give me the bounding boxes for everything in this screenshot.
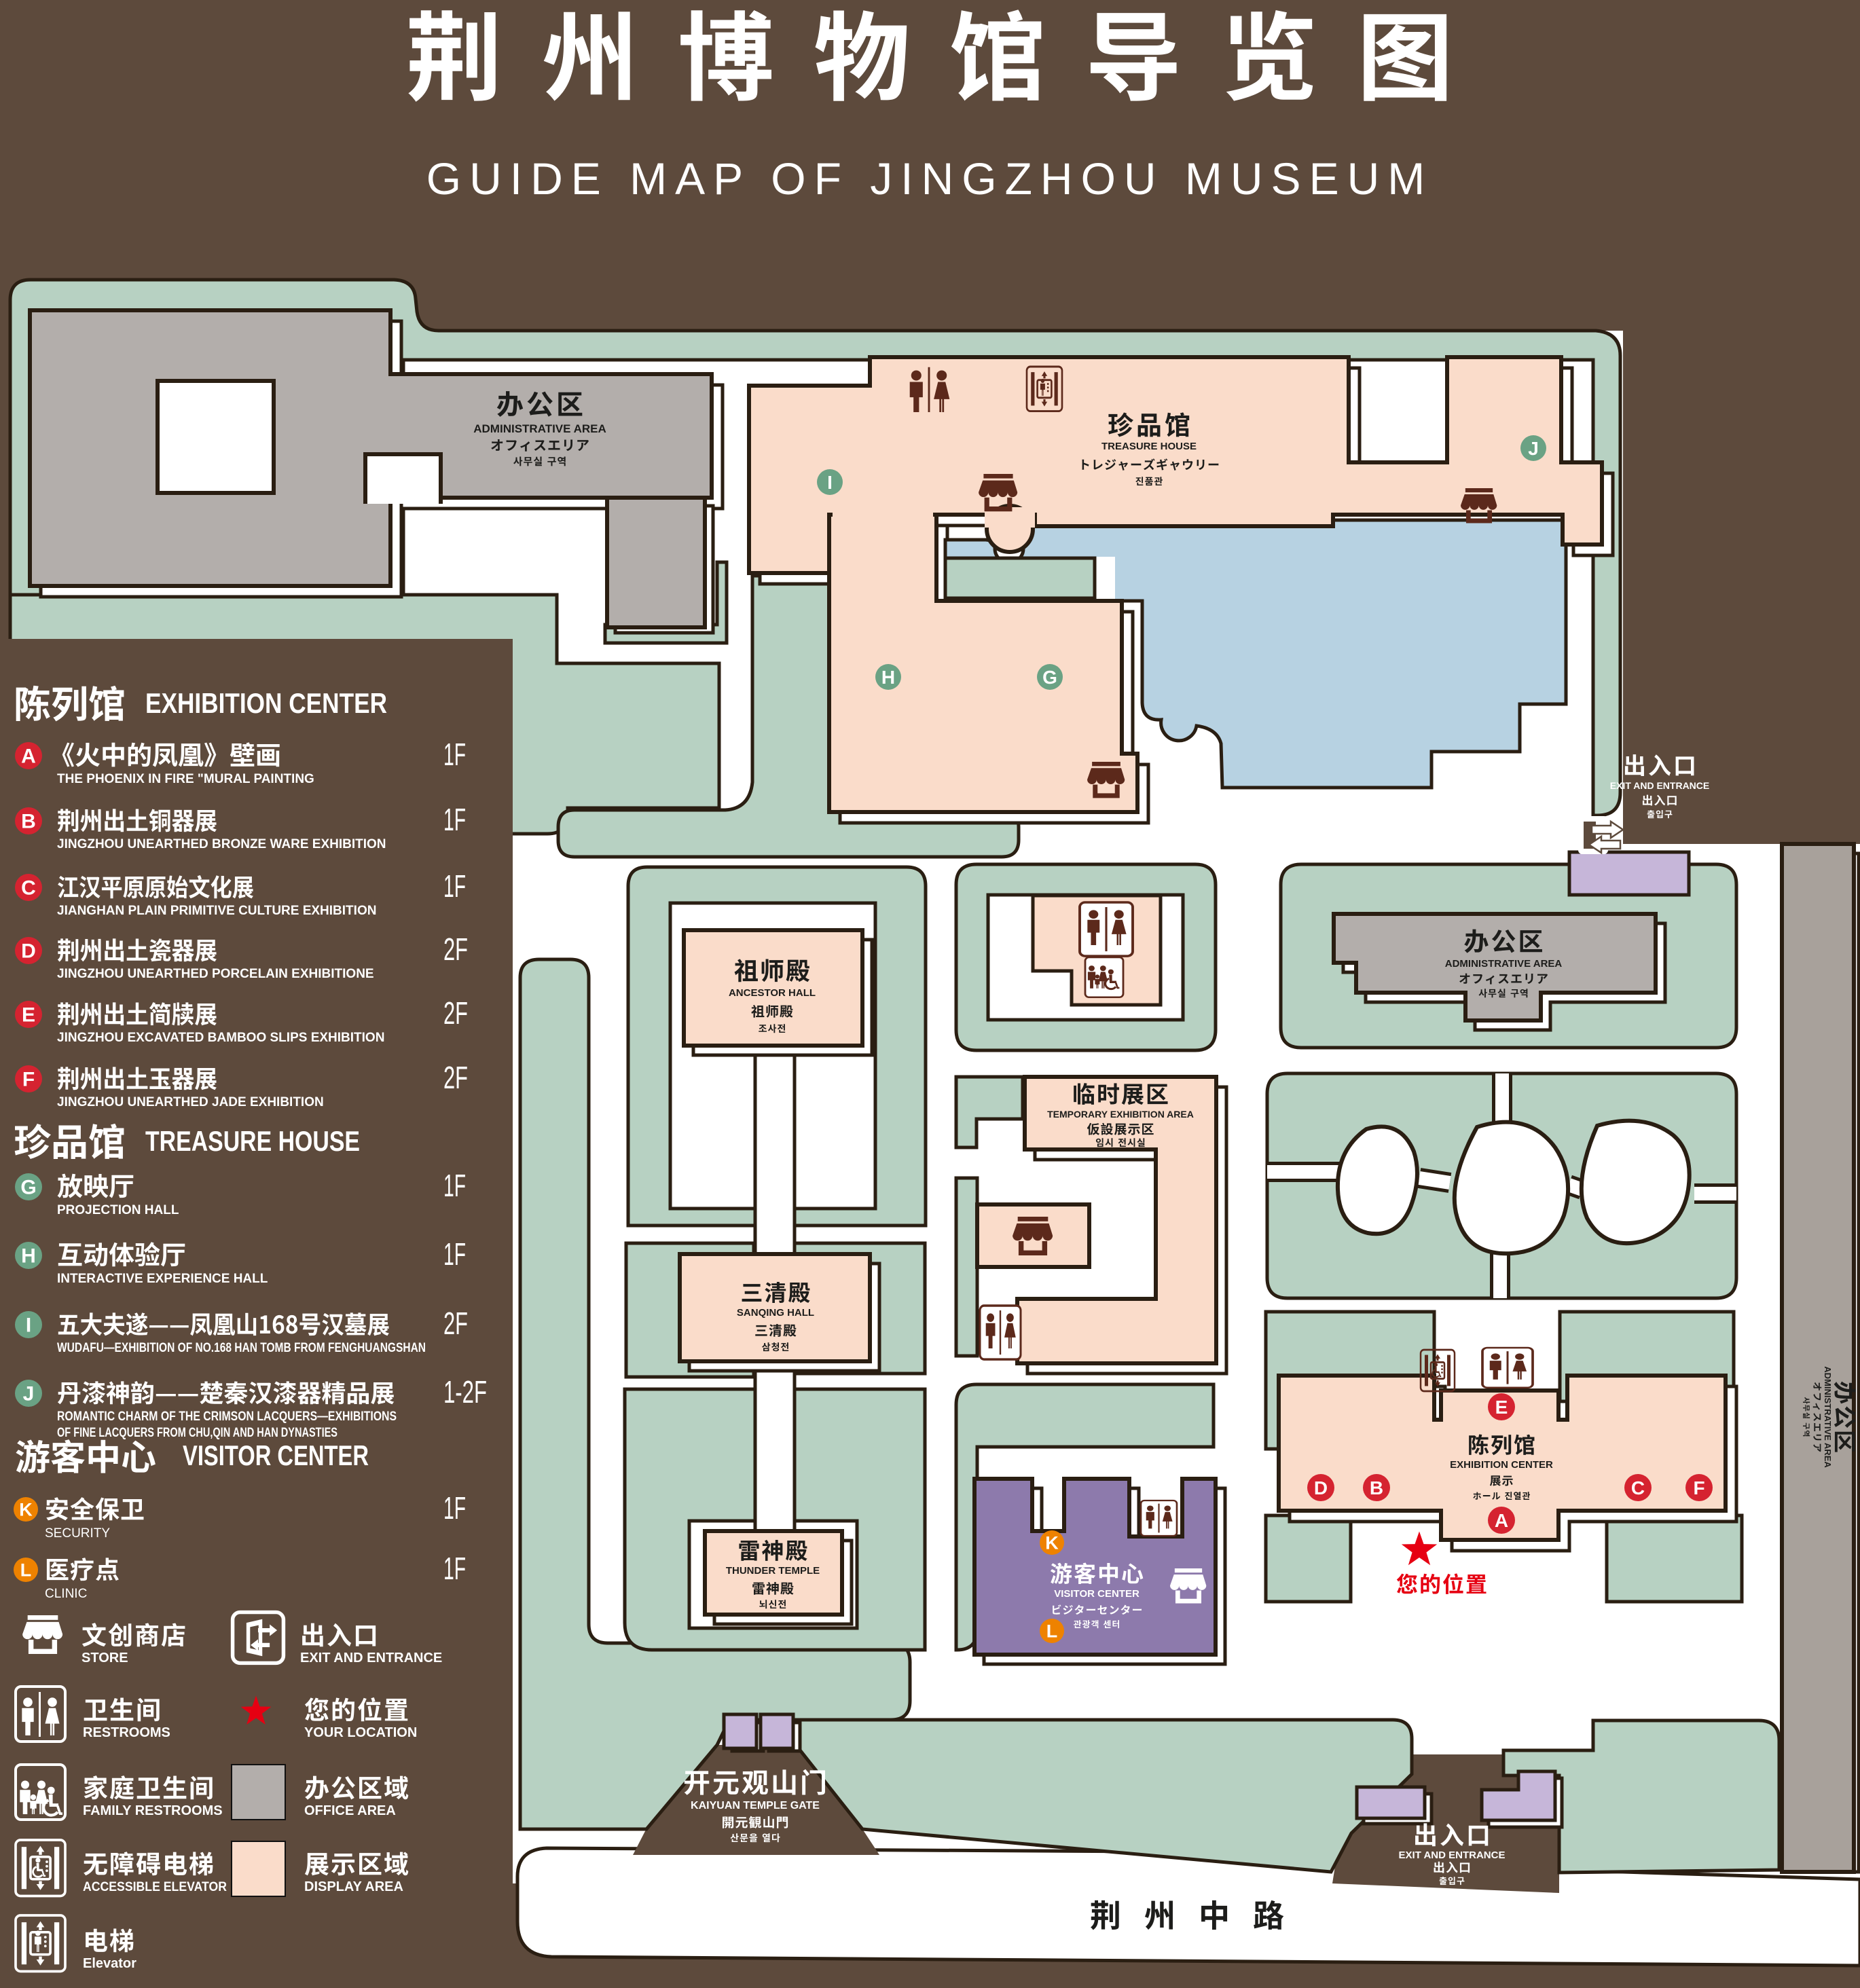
svg-text:A: A <box>1495 1510 1508 1531</box>
svg-text:STORE: STORE <box>81 1651 128 1665</box>
svg-text:GUIDE MAP OF JINGZHOU MUSEUM: GUIDE MAP OF JINGZHOU MUSEUM <box>426 153 1434 204</box>
svg-text:H: H <box>21 1245 36 1268</box>
svg-text:JIANGHAN PLAIN PRIMITIVE CULTU: JIANGHAN PLAIN PRIMITIVE CULTURE EXHIBIT… <box>57 904 376 918</box>
svg-text:1F: 1F <box>443 868 466 904</box>
svg-text:1F: 1F <box>443 1490 466 1526</box>
svg-text:VISITOR CENTER: VISITOR CENTER <box>1054 1588 1139 1600</box>
svg-text:I: I <box>827 472 833 493</box>
svg-text:KAIYUAN TEMPLE GATE: KAIYUAN TEMPLE GATE <box>691 1800 820 1811</box>
svg-text:CLINIC: CLINIC <box>45 1587 87 1601</box>
svg-text:2F: 2F <box>443 1060 468 1095</box>
svg-text:JINGZHOU UNEARTHED BRONZE WARE: JINGZHOU UNEARTHED BRONZE WARE EXHIBITIO… <box>57 837 386 851</box>
svg-text:FAMILY RESTROOMS: FAMILY RESTROOMS <box>83 1803 223 1818</box>
svg-text:JINGZHOU UNEARTHED JADE EXHIBI: JINGZHOU UNEARTHED JADE EXHIBITION <box>57 1095 324 1109</box>
svg-text:B: B <box>1370 1477 1383 1498</box>
svg-text:INTERACTIVE EXPERIENCE HALL: INTERACTIVE EXPERIENCE HALL <box>57 1272 268 1286</box>
svg-text:DISPLAY AREA: DISPLAY AREA <box>304 1879 403 1894</box>
svg-text:SANQING HALL: SANQING HALL <box>737 1307 814 1319</box>
svg-text:EXHIBITION CENTER: EXHIBITION CENTER <box>1450 1459 1553 1471</box>
svg-text:ROMANTIC CHARM OF THE CRIMSON: ROMANTIC CHARM OF THE CRIMSON LACQUERS—E… <box>57 1410 397 1424</box>
svg-text:WUDAFU—EXHIBITION OF NO.168 HA: WUDAFU—EXHIBITION OF NO.168 HAN TOMB FRO… <box>57 1341 426 1355</box>
svg-text:K: K <box>1045 1532 1059 1553</box>
svg-text:THUNDER TEMPLE: THUNDER TEMPLE <box>726 1565 820 1577</box>
svg-text:EXIT AND ENTRANCE: EXIT AND ENTRANCE <box>1610 780 1710 791</box>
svg-text:1F: 1F <box>443 802 466 837</box>
svg-text:D: D <box>21 940 36 963</box>
svg-text:TEMPORARY EXHIBITION AREA: TEMPORARY EXHIBITION AREA <box>1047 1109 1194 1120</box>
svg-text:1F: 1F <box>443 1551 466 1586</box>
svg-text:B: B <box>21 811 36 833</box>
svg-text:TREASURE HOUSE: TREASURE HOUSE <box>145 1125 360 1157</box>
svg-text:1F: 1F <box>443 1236 466 1272</box>
svg-text:H: H <box>881 667 895 688</box>
svg-text:1-2F: 1-2F <box>443 1374 487 1410</box>
svg-text:YOUR LOCATION: YOUR LOCATION <box>304 1725 417 1740</box>
svg-text:ACCESSIBLE ELEVATOR: ACCESSIBLE ELEVATOR <box>83 1880 227 1894</box>
svg-text:EXIT AND ENTRANCE: EXIT AND ENTRANCE <box>300 1651 442 1665</box>
svg-text:A: A <box>21 745 36 768</box>
svg-text:EXHIBITION CENTER: EXHIBITION CENTER <box>145 687 387 719</box>
svg-text:F: F <box>22 1069 35 1091</box>
svg-text:I: I <box>26 1314 31 1337</box>
svg-text:L: L <box>1046 1621 1058 1641</box>
svg-text:1F: 1F <box>443 1168 466 1203</box>
svg-text:K: K <box>19 1499 33 1520</box>
svg-text:OF FINE LACQUERS FROM CHU,QIN: OF FINE LACQUERS FROM CHU,QIN AND HAN DY… <box>57 1426 338 1440</box>
svg-text:JINGZHOU UNEARTHED PORCELAIN E: JINGZHOU UNEARTHED PORCELAIN EXHIBITIONE <box>57 967 374 981</box>
svg-text:JINGZHOU EXCAVATED BAMBOO SLIP: JINGZHOU EXCAVATED BAMBOO SLIPS EXHIBITI… <box>57 1031 384 1045</box>
svg-text:C: C <box>1631 1477 1645 1498</box>
svg-text:G: G <box>20 1177 36 1199</box>
svg-text:ADMINISTRATIVE AREA: ADMINISTRATIVE AREA <box>473 422 606 435</box>
svg-text:Elevator: Elevator <box>83 1956 136 1971</box>
svg-text:OFFICE AREA: OFFICE AREA <box>304 1803 396 1818</box>
svg-text:L: L <box>20 1560 32 1580</box>
svg-text:1F: 1F <box>443 737 466 772</box>
svg-text:2F: 2F <box>443 932 468 967</box>
svg-text:F: F <box>1693 1477 1704 1498</box>
svg-text:J: J <box>23 1383 35 1405</box>
svg-text:ANCESTOR HALL: ANCESTOR HALL <box>729 987 816 999</box>
svg-text:E: E <box>1495 1397 1508 1418</box>
svg-text:RESTROOMS: RESTROOMS <box>83 1725 170 1740</box>
svg-text:E: E <box>22 1004 35 1027</box>
svg-text:C: C <box>21 877 36 900</box>
svg-text:SECURITY: SECURITY <box>45 1526 110 1541</box>
svg-text:ADMINISTRATIVE AREA: ADMINISTRATIVE AREA <box>1445 958 1563 970</box>
svg-text:PROJECTION HALL: PROJECTION HALL <box>57 1203 179 1217</box>
svg-text:G: G <box>1042 667 1057 688</box>
svg-text:ADMINISTRATIVE AREA: ADMINISTRATIVE AREA <box>1823 1366 1833 1468</box>
svg-text:J: J <box>1528 438 1539 459</box>
svg-text:THE PHOENIX IN FIRE "MURAL PAI: THE PHOENIX IN FIRE "MURAL PAINTING <box>57 772 314 786</box>
svg-text:TREASURE HOUSE: TREASURE HOUSE <box>1101 441 1197 452</box>
svg-text:EXIT AND ENTRANCE: EXIT AND ENTRANCE <box>1399 1849 1506 1861</box>
svg-text:2F: 2F <box>443 1306 468 1341</box>
svg-text:D: D <box>1314 1477 1328 1498</box>
svg-text:2F: 2F <box>443 995 468 1031</box>
svg-text:VISITOR CENTER: VISITOR CENTER <box>183 1439 369 1471</box>
